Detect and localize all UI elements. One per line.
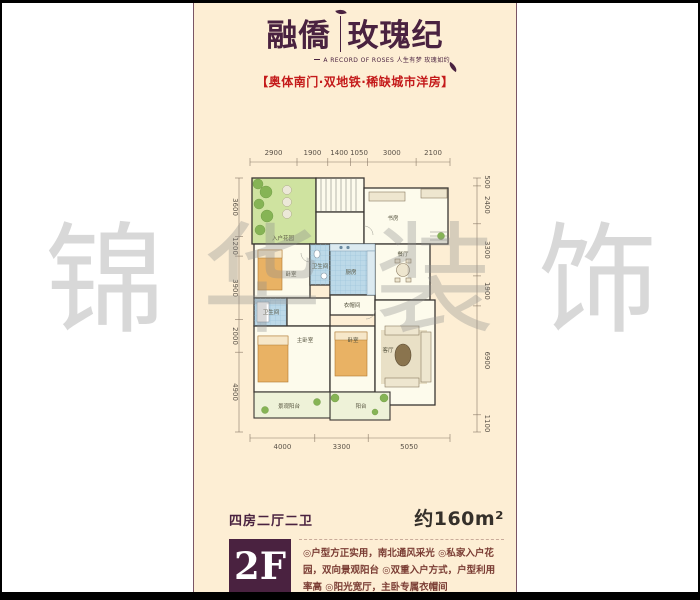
footer: 四房二厅二卫 约160m² 2F ◎户型方正实用，南北通风采光 ◎私家入户花园，… <box>229 504 504 600</box>
sink <box>321 273 327 279</box>
brand-tagline: A RECORD OF ROSES 人生有梦 玫瑰如约 <box>323 55 450 64</box>
dim-bottom-2: 5050 <box>400 443 418 451</box>
dim-right-2: 3300 <box>483 241 491 259</box>
room-label-bath-lower: 卫生间 <box>263 308 280 316</box>
dim-top-0: 2900 <box>265 149 283 157</box>
tagline-rule <box>314 59 320 60</box>
dim-top-1: 1900 <box>303 149 321 157</box>
room-staircase <box>316 178 364 212</box>
dim-right-3: 1900 <box>483 282 491 300</box>
kitchen-counter <box>330 244 375 251</box>
leaf-icon <box>335 7 346 16</box>
dim-bottom-1: 3300 <box>333 443 351 451</box>
sofa-right <box>421 332 431 382</box>
dim-top-2: 1400 <box>330 149 348 157</box>
room-label-kitchen: 厨房 <box>345 268 357 276</box>
frame-left <box>0 0 2 600</box>
room-label-balcony: 阳台 <box>355 402 367 410</box>
dim-right-5: 1100 <box>483 415 491 433</box>
dim-left-4: 4900 <box>231 383 239 401</box>
feature-text: ◎户型方正实用，南北通风采光 ◎私家入户花园，双向景观阳台 ◎双重入户方式，户型… <box>299 539 504 600</box>
room-corridor <box>287 298 330 326</box>
dim-right-0: 500 <box>483 175 491 188</box>
dim-top-5: 2100 <box>424 149 442 157</box>
room-label-study: 书房 <box>387 214 399 222</box>
brand-logo: 融僑 玫瑰纪 <box>194 16 516 52</box>
location-subtitle: 【奥体南门·双地铁·稀缺城市洋房】 <box>194 73 516 90</box>
dim-top-4: 3000 <box>383 149 401 157</box>
study-desk <box>369 192 405 201</box>
room-label-bedroom-bottom: 卧室 <box>347 336 359 344</box>
dim-left-3: 2000 <box>231 327 239 345</box>
room-label-cloakroom: 衣帽间 <box>344 301 361 309</box>
plant-pot <box>438 233 445 240</box>
area-value: 约160m² <box>414 504 504 531</box>
sofa-bottom <box>385 378 419 387</box>
room-label-bedroom-left: 卧室 <box>285 270 297 278</box>
brand-name-left: 融僑 <box>267 21 331 52</box>
dim-left-1: 1200 <box>231 237 239 255</box>
frame-top <box>0 0 700 3</box>
room-hallway <box>316 212 364 244</box>
dim-left-0: 3600 <box>231 198 239 216</box>
sofa-top <box>385 326 419 335</box>
dim-bottom-0: 4000 <box>273 443 291 451</box>
room-label-bath-center: 卫生间 <box>312 262 329 270</box>
toilet <box>314 250 320 258</box>
dim-right-1: 2400 <box>483 196 491 214</box>
room-label-living: 客厅 <box>382 346 394 354</box>
frame-bottom <box>0 592 700 600</box>
poster-panel: 融僑 玫瑰纪 A RECORD OF ROSES 人生有梦 玫瑰如约 【奥体南门… <box>193 3 517 592</box>
brand-divider <box>340 16 341 52</box>
coffee-table <box>395 344 411 366</box>
watermark-char: 饰 <box>538 222 658 342</box>
feature-row: 2F ◎户型方正实用，南北通风采光 ◎私家入户花园，双向景观阳台 ◎双重入户方式… <box>229 539 504 600</box>
dining-table <box>397 264 410 277</box>
room-label-entry-garden: 入户花园 <box>272 234 295 242</box>
room-label-dining: 餐厅 <box>397 250 409 258</box>
poster: 融僑 玫瑰纪 A RECORD OF ROSES 人生有梦 玫瑰如约 【奥体南门… <box>0 0 700 600</box>
dim-left-2: 3900 <box>231 279 239 297</box>
study-wardrobe <box>421 189 447 198</box>
dim-right-4: 6900 <box>483 351 491 369</box>
room-label-view-balcony: 景观阳台 <box>278 402 301 410</box>
room-label-master-bedroom: 主卧室 <box>297 336 314 344</box>
floor-badge: 2F <box>229 539 291 593</box>
brand-name-right: 玫瑰纪 <box>348 21 444 52</box>
floor-plan: 入户花园 书房 卧室 卫生间 厨房 餐厅 衣帽间 卫生间 主卧室 卧室 客厅 阳… <box>225 140 495 460</box>
brand-tagline-row: A RECORD OF ROSES 人生有梦 玫瑰如约 <box>194 55 516 64</box>
dim-top-3: 1050 <box>350 149 368 157</box>
type-row: 四房二厅二卫 约160m² <box>229 504 504 531</box>
layout-type: 四房二厅二卫 <box>229 510 313 529</box>
watermark-char: 锦 <box>45 222 165 342</box>
